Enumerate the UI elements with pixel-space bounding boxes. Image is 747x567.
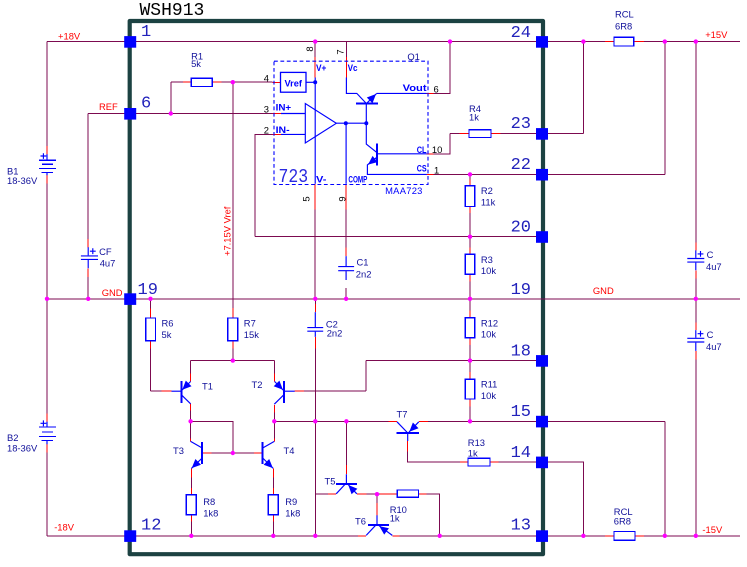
svg-text:5: 5 <box>300 196 311 201</box>
svg-text:-15V: -15V <box>702 524 723 535</box>
svg-text:C: C <box>707 249 714 260</box>
svg-text:10k: 10k <box>481 390 496 401</box>
svg-text:CS: CS <box>417 162 427 173</box>
svg-text:6: 6 <box>141 95 151 114</box>
svg-text:R9: R9 <box>285 496 297 507</box>
svg-text:T1: T1 <box>202 381 213 392</box>
svg-text:5k: 5k <box>191 58 201 69</box>
svg-text:7: 7 <box>334 49 345 54</box>
svg-text:10k: 10k <box>481 329 496 340</box>
svg-text:V+: V+ <box>316 62 327 73</box>
svg-text:19: 19 <box>511 281 531 300</box>
svg-text:T3: T3 <box>173 445 184 456</box>
svg-text:T6: T6 <box>355 516 366 527</box>
svg-text:23: 23 <box>511 115 531 134</box>
svg-text:B2: B2 <box>7 432 18 443</box>
svg-text:R8: R8 <box>203 496 215 507</box>
svg-text:GND: GND <box>102 287 123 298</box>
svg-text:10: 10 <box>432 144 442 155</box>
svg-text:RCL: RCL <box>615 9 634 20</box>
svg-text:GND: GND <box>593 285 614 296</box>
svg-text:WSH913: WSH913 <box>140 1 205 21</box>
svg-text:IN-: IN- <box>276 124 290 135</box>
svg-text:C: C <box>707 329 714 340</box>
svg-text:R11: R11 <box>481 379 498 390</box>
svg-text:18-36V: 18-36V <box>7 175 38 186</box>
svg-text:T7: T7 <box>397 408 408 419</box>
svg-text:11k: 11k <box>481 196 496 207</box>
svg-text:6R8: 6R8 <box>615 21 632 32</box>
svg-text:723: 723 <box>279 166 309 188</box>
svg-text:+7.15V Vref: +7.15V Vref <box>221 206 232 256</box>
svg-text:MAA723: MAA723 <box>385 185 422 196</box>
svg-text:2n2: 2n2 <box>356 269 372 280</box>
svg-text:-18V: -18V <box>54 521 75 532</box>
svg-text:V-: V- <box>316 174 326 185</box>
svg-text:12: 12 <box>141 517 161 536</box>
svg-text:Q1: Q1 <box>407 51 420 62</box>
svg-text:1k8: 1k8 <box>203 507 218 518</box>
svg-text:1: 1 <box>141 23 151 42</box>
svg-text:24: 24 <box>511 24 531 43</box>
svg-text:1k: 1k <box>390 512 400 523</box>
svg-text:18: 18 <box>511 343 531 362</box>
svg-text:1: 1 <box>434 164 439 175</box>
svg-text:COMP: COMP <box>348 174 367 185</box>
svg-text:8: 8 <box>304 46 315 51</box>
svg-text:1k8: 1k8 <box>285 507 300 518</box>
svg-text:6R8: 6R8 <box>614 516 631 527</box>
svg-text:R3: R3 <box>481 254 493 265</box>
svg-text:Vc: Vc <box>348 62 358 73</box>
svg-text:19: 19 <box>138 281 158 300</box>
svg-text:R6: R6 <box>162 317 174 328</box>
svg-text:14: 14 <box>511 444 531 463</box>
svg-text:+15V: +15V <box>705 29 728 40</box>
svg-text:18-36V: 18-36V <box>7 442 38 453</box>
svg-text:20: 20 <box>511 219 531 238</box>
svg-text:R7: R7 <box>244 317 256 328</box>
svg-text:13: 13 <box>511 517 531 536</box>
svg-text:REF: REF <box>99 101 118 112</box>
svg-text:T5: T5 <box>325 475 336 486</box>
svg-text:Vref: Vref <box>285 78 303 89</box>
svg-text:6: 6 <box>434 83 439 94</box>
svg-text:1k: 1k <box>469 111 479 122</box>
svg-text:Vout: Vout <box>403 82 427 93</box>
svg-text:3: 3 <box>264 104 269 115</box>
svg-text:+18V: +18V <box>58 30 81 41</box>
svg-text:R2: R2 <box>481 185 493 196</box>
svg-text:T2: T2 <box>252 379 263 390</box>
svg-text:15k: 15k <box>244 329 259 340</box>
svg-text:CF: CF <box>99 246 112 257</box>
svg-text:T4: T4 <box>284 445 295 456</box>
svg-text:15: 15 <box>511 403 531 422</box>
svg-text:R12: R12 <box>481 317 498 328</box>
svg-text:CL: CL <box>417 144 427 155</box>
svg-text:4u7: 4u7 <box>706 341 722 352</box>
svg-text:10k: 10k <box>481 265 496 276</box>
svg-text:C1: C1 <box>357 257 369 268</box>
svg-text:2n2: 2n2 <box>327 327 343 338</box>
svg-text:22: 22 <box>511 156 531 175</box>
svg-text:2: 2 <box>264 124 269 135</box>
svg-text:4u7: 4u7 <box>706 261 722 272</box>
svg-text:4: 4 <box>264 72 269 83</box>
svg-text:IN+: IN+ <box>276 102 292 113</box>
svg-text:9: 9 <box>337 196 348 201</box>
svg-text:4u7: 4u7 <box>100 258 116 269</box>
svg-text:1k: 1k <box>468 447 478 458</box>
svg-text:5k: 5k <box>162 329 172 340</box>
